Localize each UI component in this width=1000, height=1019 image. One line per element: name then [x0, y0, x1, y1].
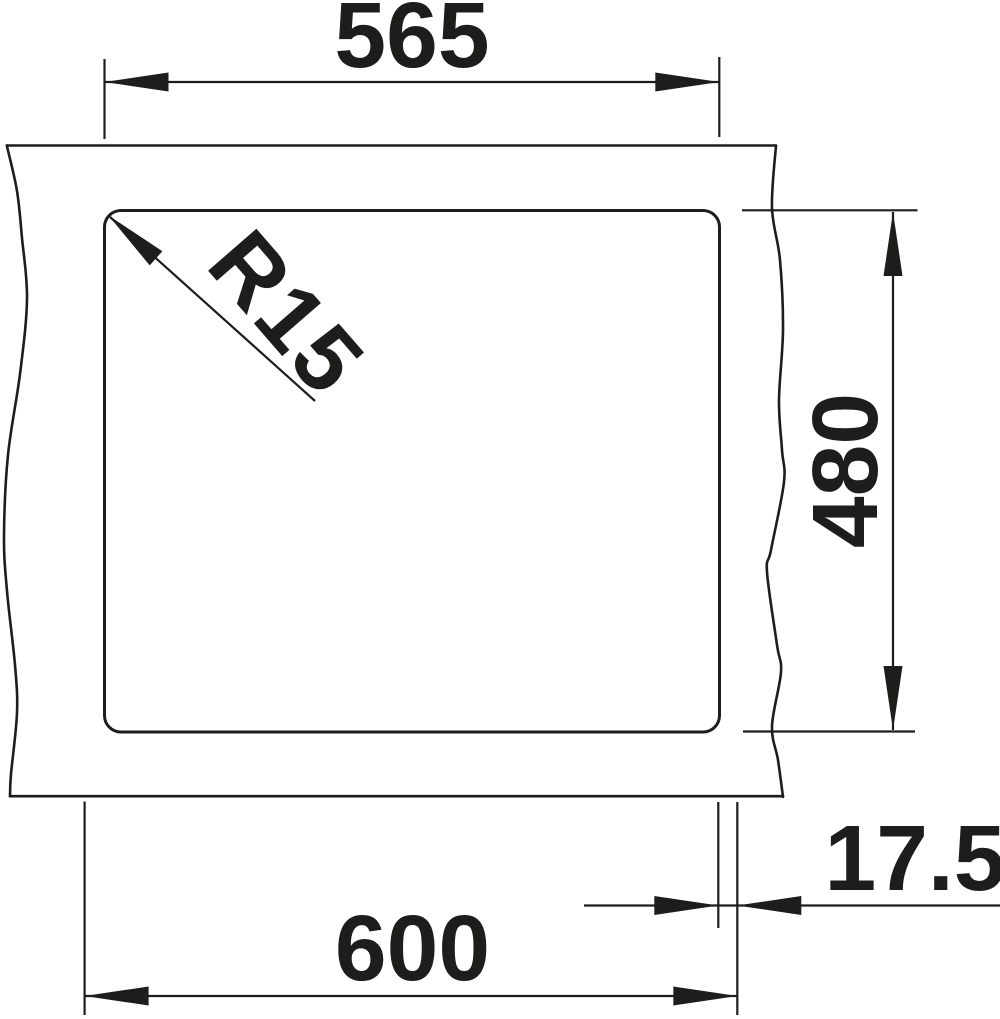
svg-text:480: 480	[793, 393, 897, 548]
svg-text:600: 600	[335, 896, 490, 1000]
svg-text:R15: R15	[189, 211, 385, 415]
svg-text:565: 565	[334, 0, 489, 87]
svg-text:17.5: 17.5	[824, 806, 1000, 910]
